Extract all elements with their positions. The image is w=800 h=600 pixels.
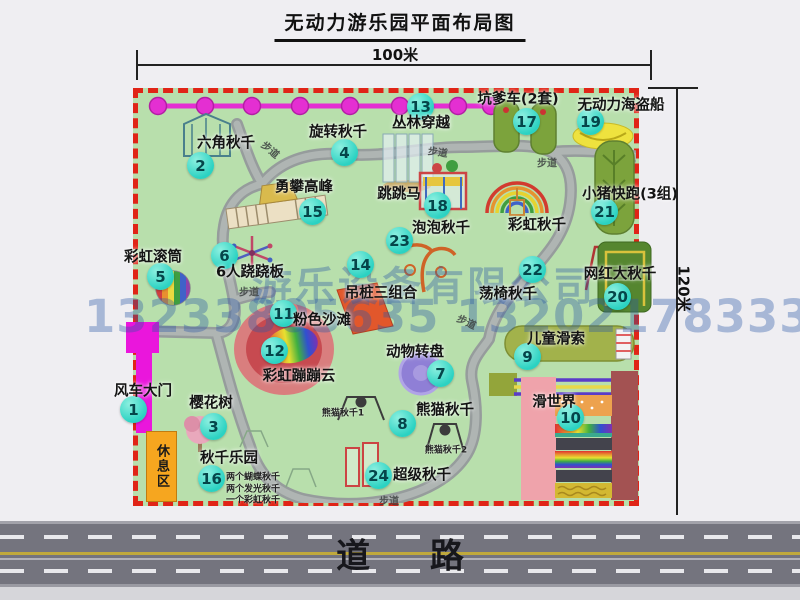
attraction-17-label: 坑爹车(2套) xyxy=(477,88,558,109)
attraction-1-label: 风车大门 xyxy=(114,380,172,401)
attraction-22-badge: 22 xyxy=(519,256,546,283)
attraction-24-badge: 24 xyxy=(365,462,392,489)
trail-label-5: 步道 xyxy=(379,493,399,508)
attraction-18-label: 跳跳马 xyxy=(377,183,421,204)
stage: 无动力游乐园平面布局图 100米 120米 xyxy=(0,0,800,600)
attraction-8-label: 熊猫秋千 xyxy=(416,399,474,420)
attraction-8-badge: 8 xyxy=(389,410,416,437)
attraction-2-label: 六角秋千 xyxy=(197,132,255,153)
page-title: 无动力游乐园平面布局图 xyxy=(274,8,525,42)
attraction-彩虹秋千-label: 彩虹秋千 xyxy=(508,214,566,235)
road: 道 路 xyxy=(0,521,800,587)
dimension-top-tick-left xyxy=(136,50,138,80)
attraction-5-label: 彩虹滚筒 xyxy=(124,246,182,267)
attraction-12-badge: 12 xyxy=(261,337,288,364)
attraction-21-label: 小猪快跑(3组) xyxy=(582,183,678,204)
attraction-17-badge: 17 xyxy=(513,108,540,135)
road-label: 道 路 xyxy=(336,529,464,578)
dimension-top-label: 100米 xyxy=(355,44,435,65)
attraction-15-label: 勇攀高峰 xyxy=(275,176,333,197)
attraction-3-badge: 3 xyxy=(200,413,227,440)
attraction-4-label: 旋转秋千 xyxy=(309,121,367,142)
attraction-4-badge: 4 xyxy=(331,139,358,166)
attraction-18-badge: 18 xyxy=(424,192,451,219)
attraction-20-badge: 20 xyxy=(604,283,631,310)
attraction-20-label: 网红大秋千 xyxy=(584,263,657,284)
attraction-9-label: 儿童滑索 xyxy=(527,328,585,349)
sub-label-4: 一个彩虹秋千 xyxy=(226,493,280,506)
attraction-23-badge: 23 xyxy=(386,227,413,254)
attraction-7-badge: 7 xyxy=(427,360,454,387)
attraction-23-label: 泡泡秋千 xyxy=(412,217,470,238)
trail-label-1: 步道 xyxy=(427,142,449,160)
trail-label-3: 步道 xyxy=(239,284,259,299)
attraction-15-badge: 15 xyxy=(299,198,326,225)
bottom-strip xyxy=(0,587,800,600)
trail-label-0: 步道 xyxy=(259,137,284,161)
sub-label-1: 熊猫秋千2 xyxy=(425,443,467,456)
attraction-2-badge: 2 xyxy=(187,152,214,179)
attraction-16-label: 秋千乐园 xyxy=(200,447,258,468)
attraction-22-label: 荡椅秋千 xyxy=(479,283,537,304)
sub-label-0: 熊猫秋千1 xyxy=(322,406,364,419)
attraction-3-label: 樱花树 xyxy=(189,392,233,413)
attraction-14-badge: 14 xyxy=(347,251,374,278)
attraction-6-label: 6人跷跷板 xyxy=(216,261,284,282)
trail-label-4: 步道 xyxy=(455,310,479,332)
attraction-14-label: 吊桩三组合 xyxy=(345,282,418,303)
dimension-right-tick-top xyxy=(648,87,698,89)
attraction-24-label: 超级秋千 xyxy=(393,464,451,485)
attraction-5-badge: 5 xyxy=(147,263,174,290)
attraction-7-label: 动物转盘 xyxy=(386,341,444,362)
dimension-top-tick-right xyxy=(650,50,652,80)
attraction-16-badge: 16 xyxy=(198,465,225,492)
dimension-right-label: 120米 xyxy=(674,259,695,319)
attraction-19-label: 无动力海盗船 xyxy=(578,94,665,115)
attraction-10-label: 滑世界 xyxy=(532,391,576,412)
attraction-12-label: 彩虹蹦蹦云 xyxy=(263,365,336,386)
attraction-11-label: 粉色沙滩 xyxy=(293,309,351,330)
attraction-13-label: 丛林穿越 xyxy=(392,112,450,133)
trail-label-2: 步道 xyxy=(537,155,557,170)
